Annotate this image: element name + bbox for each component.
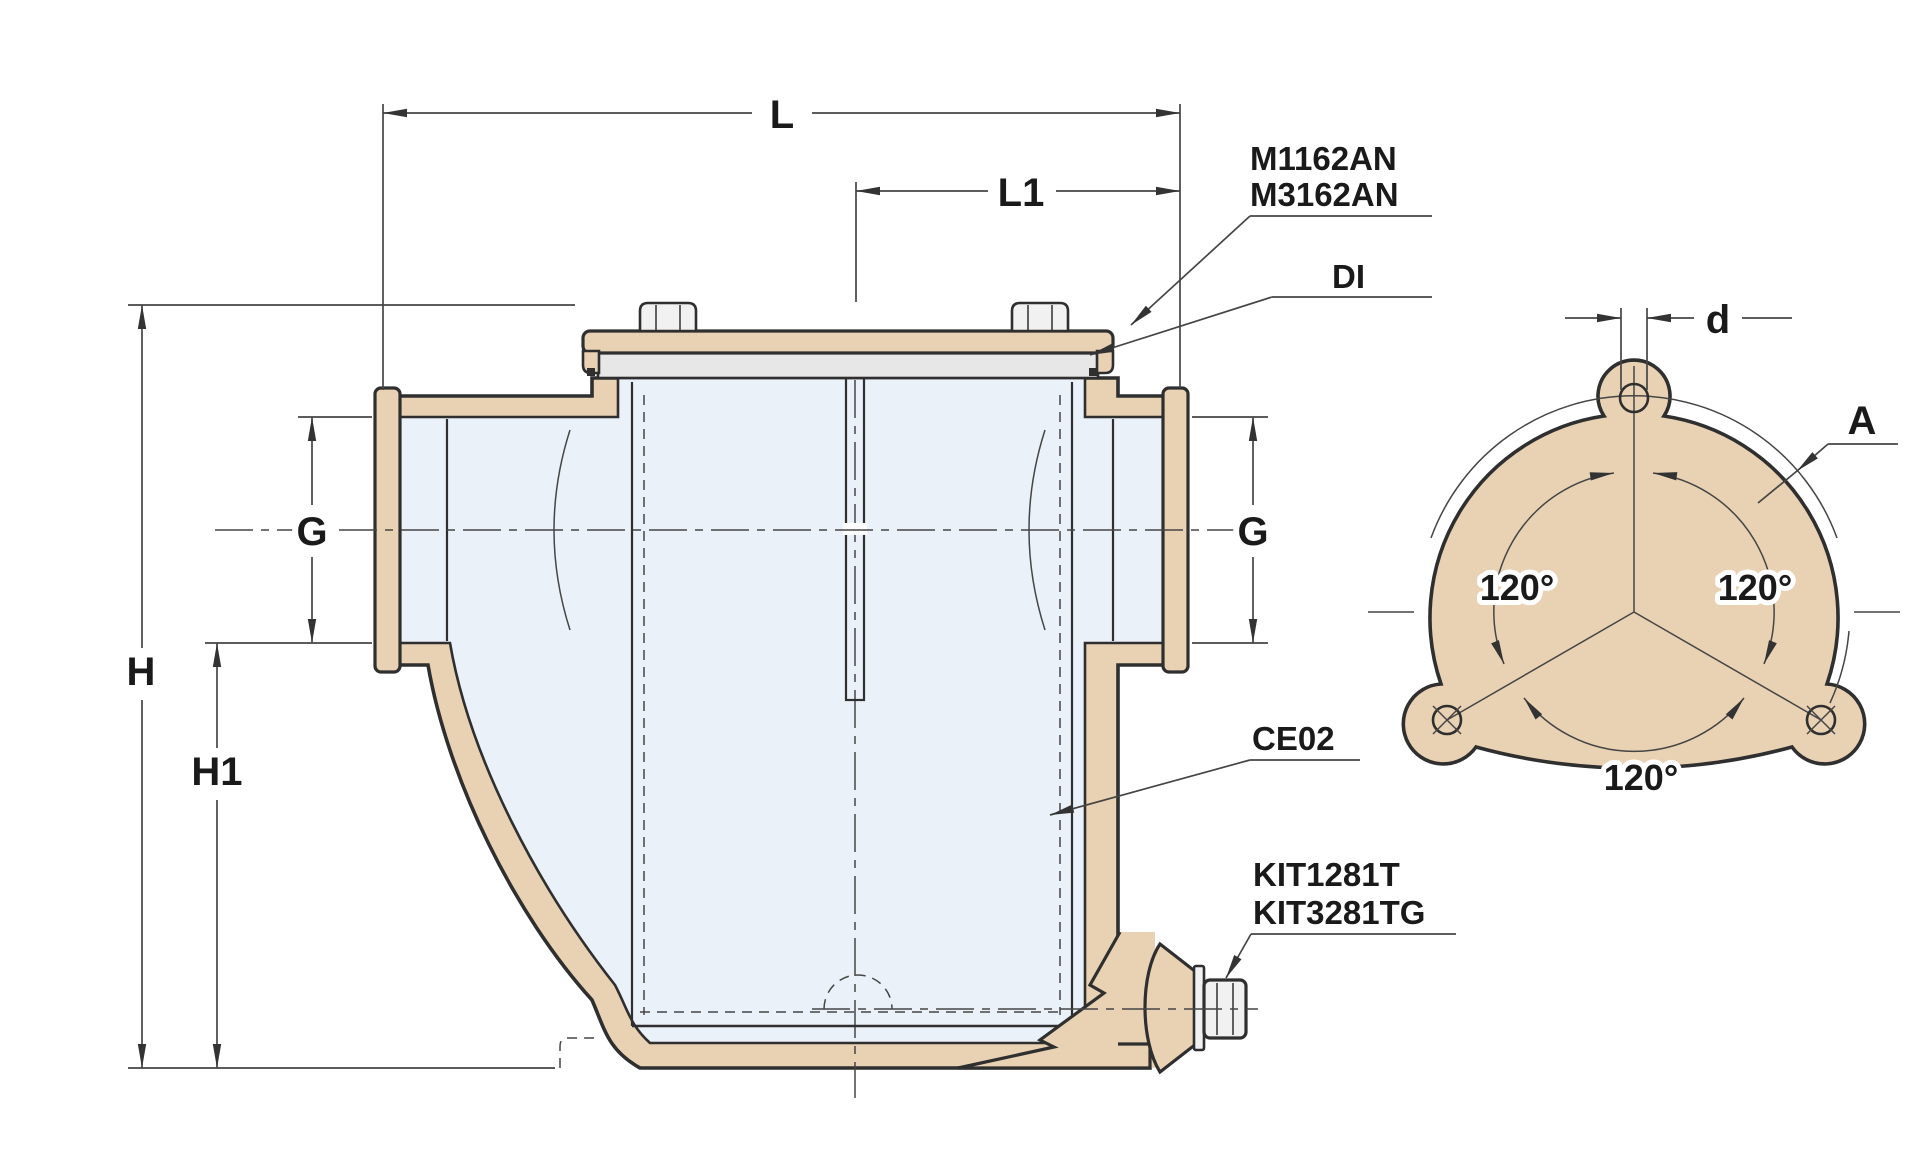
dim-label-G-left: G: [296, 510, 327, 554]
callout-lid: DI: [1090, 258, 1432, 355]
callout-model-line2: M3162AN: [1250, 176, 1399, 213]
stem-break: [843, 523, 867, 535]
lid-seal-right: [1089, 368, 1097, 376]
section-view: L L1 G G H: [127, 93, 1456, 1098]
cover-flange: [583, 331, 1113, 353]
dim-label-L: L: [770, 93, 794, 137]
angle-label-bottom: 120°: [1604, 757, 1678, 798]
dimension-d: d: [1565, 298, 1792, 390]
callout-kit-line1: KIT1281T: [1253, 856, 1400, 893]
dim-label-L1: L1: [998, 171, 1045, 215]
hidden-foot: [560, 1038, 600, 1068]
dimension-L1: L1: [856, 171, 1180, 302]
lid-seal-left: [587, 368, 595, 376]
angle-label-left: 120°: [1480, 567, 1554, 608]
hex-bolt-right: [1012, 303, 1068, 331]
callout-kit-line2: KIT3281TG: [1253, 894, 1425, 931]
hex-bolt-left: [640, 303, 696, 331]
technical-drawing-page: L L1 G G H: [0, 0, 1920, 1154]
dim-label-H1: H1: [191, 750, 242, 794]
callout-drain-kit: KIT1281T KIT3281TG: [1226, 856, 1456, 978]
dim-label-G-right: G: [1237, 510, 1268, 554]
dimension-H1: H1: [191, 643, 372, 1068]
vessel-interior: [400, 378, 1180, 1043]
dim-label-d: d: [1706, 298, 1730, 342]
flange-view: d A 120° 120° 120°: [1368, 298, 1900, 798]
dim-label-H: H: [127, 650, 156, 694]
cover-hook-right: [1097, 351, 1113, 373]
drain-boss: [1145, 944, 1196, 1072]
callout-model-line1: M1162AN: [1250, 140, 1397, 177]
lid-plate: [598, 352, 1098, 378]
dim-label-A: A: [1848, 399, 1877, 443]
lid-assembly: [583, 303, 1113, 378]
angle-label-right: 120°: [1718, 567, 1792, 608]
strainer-drawing: L L1 G G H: [0, 0, 1920, 1154]
callout-lid-label: DI: [1332, 258, 1365, 295]
callout-basket-label: CE02: [1252, 720, 1335, 757]
